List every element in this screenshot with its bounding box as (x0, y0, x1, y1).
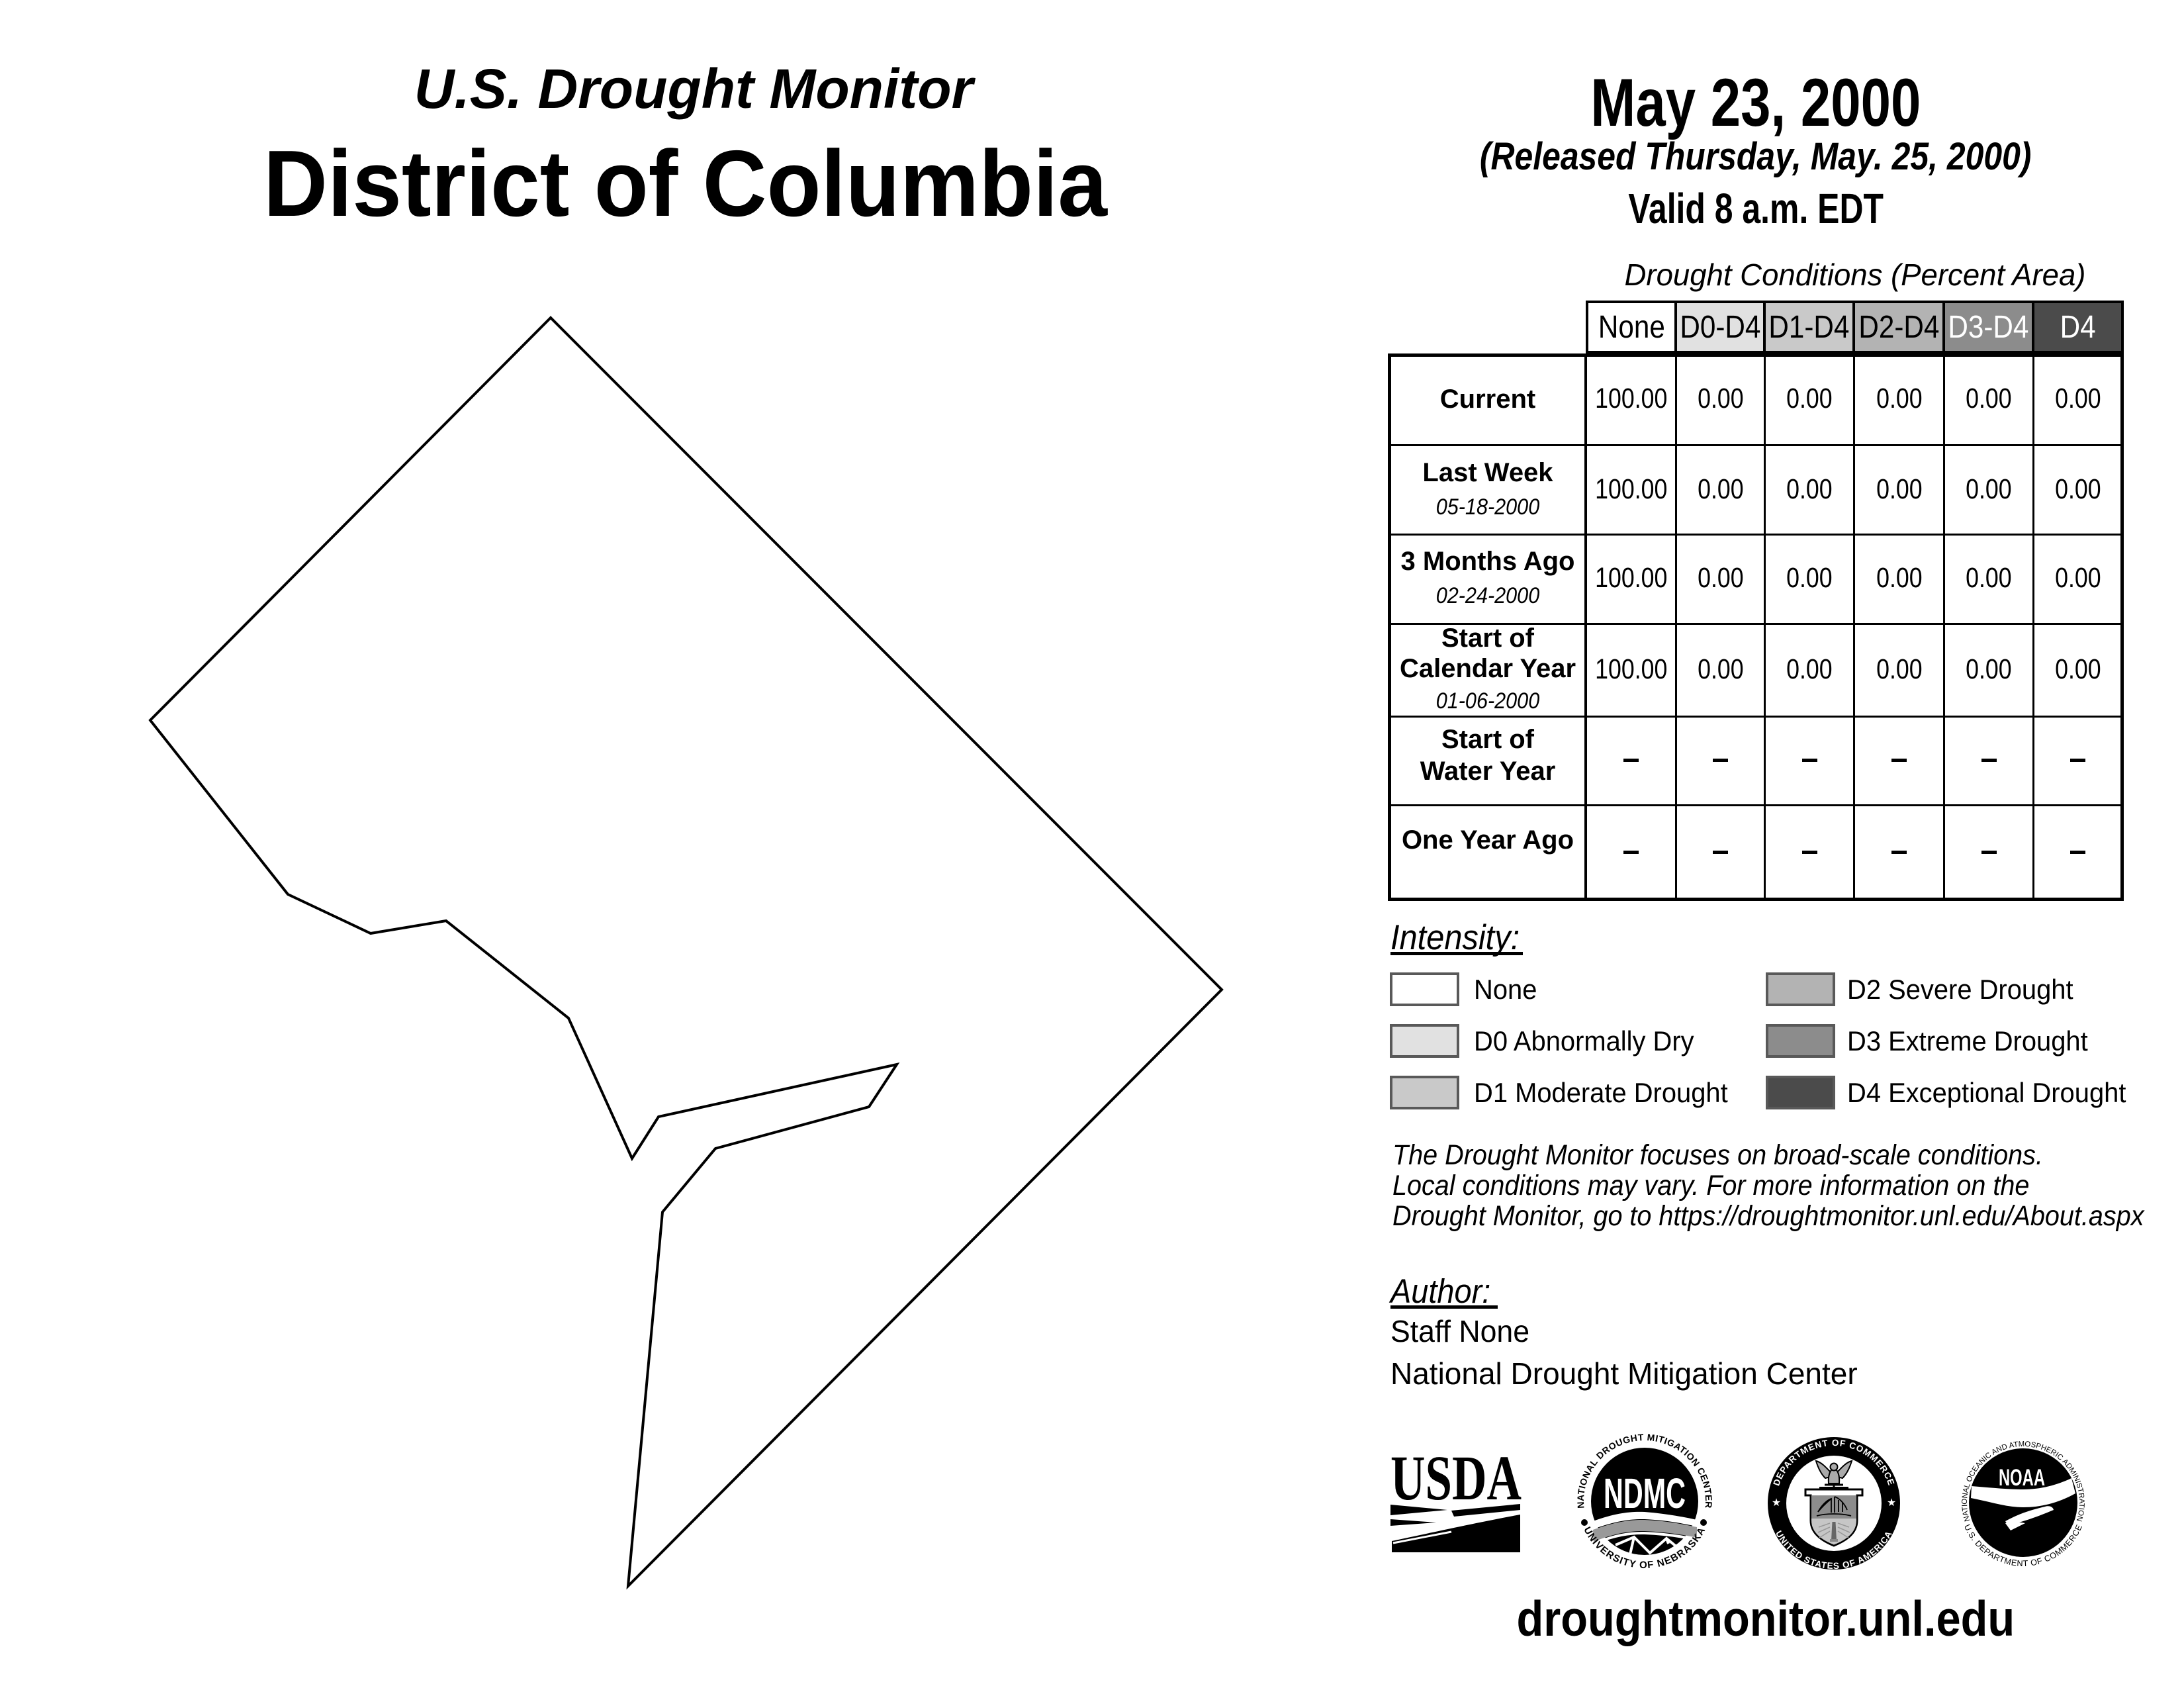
svg-text:NDMC: NDMC (1604, 1470, 1686, 1517)
svg-text:USDA: USDA (1390, 1455, 1522, 1513)
svg-text:★: ★ (1772, 1497, 1781, 1509)
svg-text:NOAA: NOAA (1999, 1465, 2045, 1491)
svg-text:★: ★ (1887, 1497, 1896, 1509)
